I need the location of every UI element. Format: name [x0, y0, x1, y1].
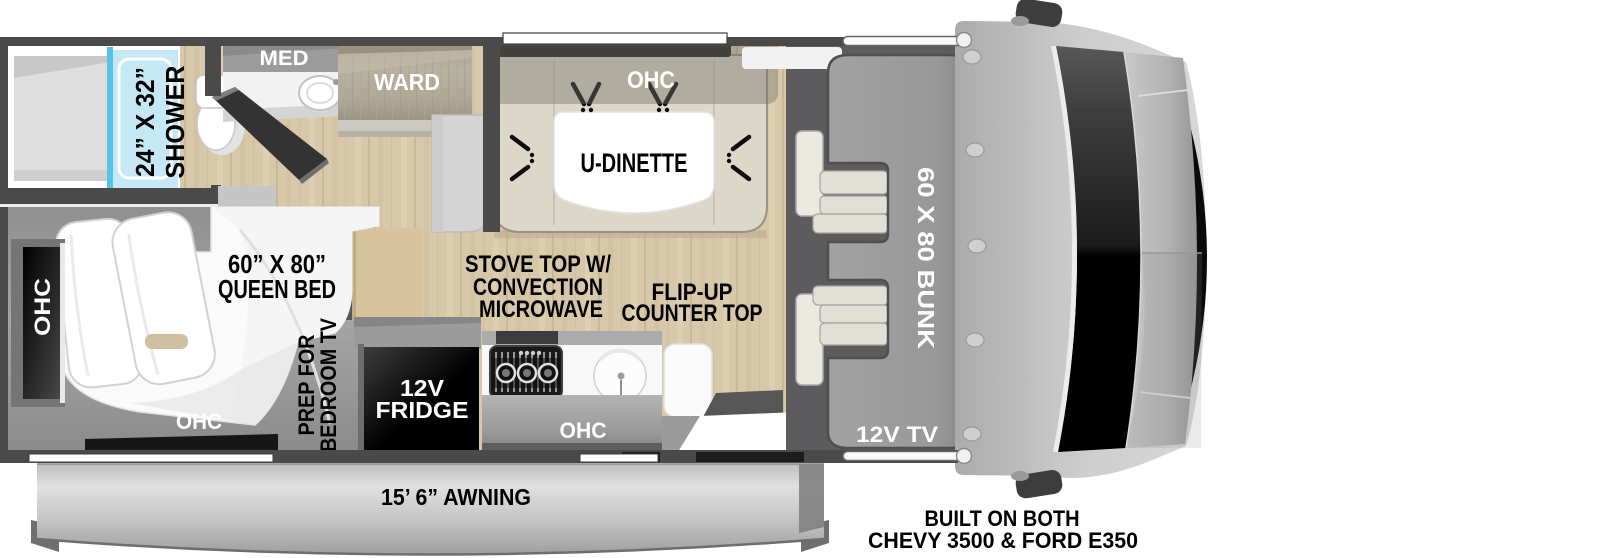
svg-text:FRIDGE: FRIDGE [376, 397, 469, 423]
svg-text:OHC: OHC [176, 409, 222, 434]
svg-text:OHC: OHC [30, 278, 55, 336]
svg-text:MICROWAVE: MICROWAVE [479, 296, 603, 323]
svg-text:MED: MED [260, 47, 309, 70]
svg-text:24” X 32”: 24” X 32” [130, 67, 160, 177]
svg-text:CHEVY 3500 & FORD E350: CHEVY 3500 & FORD E350 [868, 528, 1138, 553]
svg-text:U-DINETTE: U-DINETTE [581, 148, 688, 178]
svg-text:OHC: OHC [560, 418, 607, 443]
svg-text:SHOWER: SHOWER [160, 65, 190, 178]
svg-text:WARD: WARD [374, 69, 440, 95]
svg-text:60 X 80 BUNK: 60 X 80 BUNK [913, 167, 939, 349]
svg-text:COUNTER TOP: COUNTER TOP [622, 300, 763, 327]
svg-text:OHC: OHC [627, 67, 675, 94]
svg-text:15’ 6” AWNING: 15’ 6” AWNING [381, 484, 531, 510]
svg-text:12V TV: 12V TV [856, 422, 938, 447]
svg-text:QUEEN BED: QUEEN BED [218, 274, 336, 304]
svg-text:BEDROOM TV: BEDROOM TV [316, 318, 341, 452]
